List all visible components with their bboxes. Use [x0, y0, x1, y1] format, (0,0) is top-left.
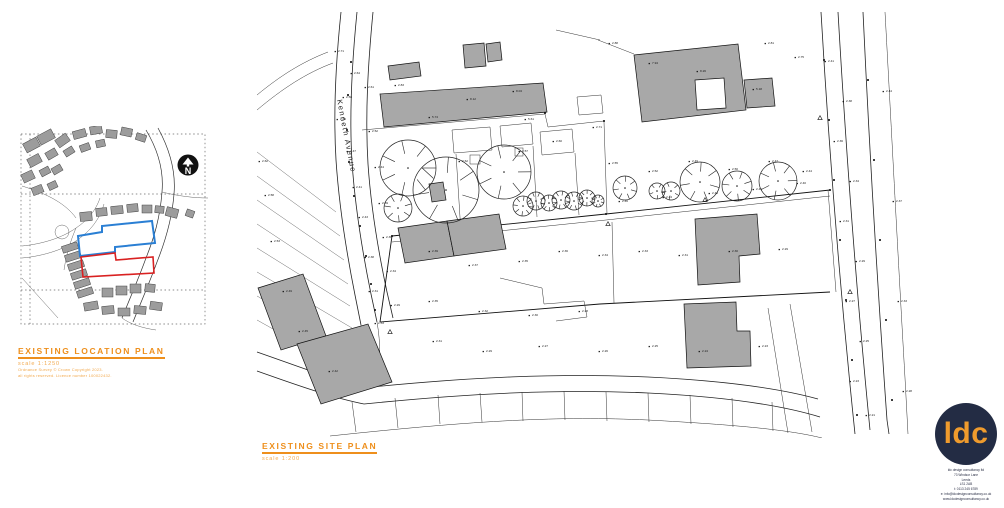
svg-text:2.38: 2.38	[846, 99, 852, 103]
svg-text:2.64: 2.64	[354, 71, 360, 75]
svg-text:2.39: 2.39	[382, 201, 388, 205]
location-plan-title: EXISTING LOCATION PLAN	[18, 346, 165, 359]
svg-text:2.41: 2.41	[828, 59, 834, 63]
svg-text:2.25: 2.25	[652, 344, 658, 348]
svg-text:2.37: 2.37	[896, 199, 902, 203]
svg-text:7.94: 7.94	[652, 61, 658, 65]
svg-text:2.50: 2.50	[732, 167, 738, 171]
svg-text:2.43: 2.43	[712, 191, 718, 195]
svg-text:2.61: 2.61	[368, 85, 374, 89]
tree-canopy-symbols	[380, 140, 797, 223]
svg-text:5.61: 5.61	[528, 117, 534, 121]
svg-text:2.53: 2.53	[274, 239, 280, 243]
svg-text:2.36: 2.36	[386, 235, 392, 239]
svg-text:2.38: 2.38	[368, 255, 374, 259]
svg-text:2.58: 2.58	[346, 95, 352, 99]
svg-text:2.29: 2.29	[394, 303, 400, 307]
ldc-logo-monogram: ldc	[944, 419, 989, 449]
svg-text:8.12: 8.12	[470, 97, 476, 101]
logo-contact-line: www.ldcdesignconsultancy.co.uk	[930, 497, 1002, 502]
svg-text:2.58: 2.58	[268, 193, 274, 197]
svg-text:2.29: 2.29	[859, 259, 865, 263]
svg-text:2.34: 2.34	[602, 253, 608, 257]
logo-contact-lines: ldc design consultancy ltd73 Windsor Lan…	[930, 468, 1002, 502]
svg-text:2.31: 2.31	[436, 339, 442, 343]
svg-text:2.57: 2.57	[522, 149, 528, 153]
site-plan-drawing: 2.712.642.582.612.662.522.472.442.412.39…	[255, 8, 920, 438]
svg-text:2.28: 2.28	[582, 309, 588, 313]
svg-text:2.71: 2.71	[596, 125, 602, 129]
svg-text:2.46: 2.46	[622, 199, 628, 203]
svg-text:2.29: 2.29	[486, 349, 492, 353]
svg-text:2.42: 2.42	[332, 369, 338, 373]
svg-text:2.36: 2.36	[562, 249, 568, 253]
svg-text:2.36: 2.36	[837, 139, 843, 143]
site-plan-scale: scale 1:200	[262, 456, 377, 462]
location-plan-note-2: all rights reserved. Licence number 1000…	[18, 373, 165, 379]
svg-text:2.30: 2.30	[532, 313, 538, 317]
svg-text:2.40: 2.40	[800, 181, 806, 185]
svg-text:2.49: 2.49	[692, 159, 698, 163]
svg-text:2.34: 2.34	[853, 179, 859, 183]
svg-text:2.52: 2.52	[372, 129, 378, 133]
svg-text:2.45: 2.45	[302, 329, 308, 333]
svg-text:2.32: 2.32	[482, 309, 488, 313]
svg-text:2.31: 2.31	[682, 253, 688, 257]
ldc-logo: ldc	[935, 403, 997, 465]
svg-text:2.28: 2.28	[906, 389, 912, 393]
svg-text:8.26: 8.26	[700, 69, 706, 73]
svg-text:2.33: 2.33	[642, 249, 648, 253]
street-name-label: Kenneth Avenue	[335, 99, 358, 174]
company-logo-block: ldc ldc design consultancy ltd73 Windsor…	[930, 403, 1002, 502]
svg-text:2.34: 2.34	[390, 269, 396, 273]
svg-text:2.44: 2.44	[886, 89, 892, 93]
svg-text:2.44: 2.44	[806, 169, 812, 173]
north-arrow-letter: N	[185, 166, 192, 176]
svg-text:2.52: 2.52	[652, 169, 658, 173]
svg-text:2.44: 2.44	[378, 165, 384, 169]
svg-text:2.35: 2.35	[432, 299, 438, 303]
svg-text:2.29: 2.29	[782, 247, 788, 251]
svg-text:2.31: 2.31	[843, 219, 849, 223]
svg-text:2.71: 2.71	[338, 49, 344, 53]
drawing-sheet: { "colors": { "accent_orange": "#ee8f1c"…	[0, 0, 1004, 508]
svg-text:2.44: 2.44	[666, 195, 672, 199]
svg-text:2.21: 2.21	[869, 413, 875, 417]
svg-text:2.49: 2.49	[286, 289, 292, 293]
svg-text:2.55: 2.55	[612, 161, 618, 165]
svg-text:2.60: 2.60	[556, 139, 562, 143]
north-arrow-icon: N	[178, 155, 199, 177]
svg-text:2.33: 2.33	[901, 299, 907, 303]
site-plan-title: EXISTING SITE PLAN	[262, 441, 377, 454]
svg-text:2.83: 2.83	[398, 83, 404, 87]
svg-text:2.35: 2.35	[522, 259, 528, 263]
svg-text:2.23: 2.23	[762, 344, 768, 348]
svg-text:2.81: 2.81	[768, 41, 774, 45]
svg-text:2.37: 2.37	[472, 263, 478, 267]
svg-text:2.33: 2.33	[378, 321, 384, 325]
svg-text:2.26: 2.26	[602, 349, 608, 353]
svg-text:8.04: 8.04	[516, 89, 522, 93]
svg-text:2.27: 2.27	[542, 344, 548, 348]
svg-text:2.25: 2.25	[863, 339, 869, 343]
site-boundary-blue	[78, 221, 155, 256]
svg-text:2.62: 2.62	[462, 159, 468, 163]
location-plan-buildings	[21, 126, 195, 316]
site-plan-caption: EXISTING SITE PLAN scale 1:200	[262, 436, 377, 462]
svg-text:2.39: 2.39	[432, 249, 438, 253]
svg-text:2.62: 2.62	[262, 159, 268, 163]
location-plan-drawing: N	[18, 126, 218, 333]
svg-text:2.27: 2.27	[849, 299, 855, 303]
svg-text:2.88: 2.88	[612, 41, 618, 45]
location-plan-caption: EXISTING LOCATION PLAN scale 1:1250 Ordn…	[18, 341, 165, 379]
svg-text:2.23: 2.23	[853, 379, 859, 383]
svg-text:2.24: 2.24	[702, 349, 708, 353]
svg-text:2.30: 2.30	[732, 249, 738, 253]
svg-text:2.41: 2.41	[356, 185, 362, 189]
svg-text:2.31: 2.31	[372, 289, 378, 293]
svg-text:2.43: 2.43	[362, 215, 368, 219]
svg-text:2.41: 2.41	[756, 187, 762, 191]
svg-text:2.47: 2.47	[772, 159, 778, 163]
svg-text:2.75: 2.75	[798, 55, 804, 59]
svg-text:5.74: 5.74	[432, 115, 438, 119]
svg-text:5.18: 5.18	[756, 87, 762, 91]
